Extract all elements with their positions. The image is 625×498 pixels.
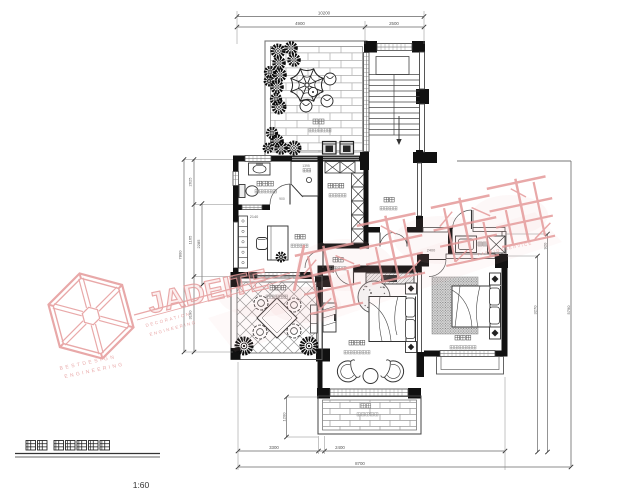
svg-text:2400: 2400 (335, 445, 345, 450)
svg-text:7800: 7800 (178, 250, 183, 260)
svg-text:5790: 5790 (566, 305, 571, 315)
svg-text:1165: 1165 (188, 235, 193, 244)
svg-text:1395: 1395 (302, 164, 310, 168)
svg-text:10200: 10200 (318, 11, 331, 16)
svg-text:1200: 1200 (282, 412, 287, 422)
svg-text:900: 900 (279, 197, 285, 201)
svg-text:2140: 2140 (250, 215, 258, 219)
svg-text:3300: 3300 (269, 445, 279, 450)
svg-text:8700: 8700 (355, 461, 365, 466)
svg-text:4900: 4900 (295, 21, 305, 26)
svg-text:2500: 2500 (389, 21, 399, 26)
svg-text:1:60: 1:60 (133, 480, 150, 490)
svg-text:2625: 2625 (188, 177, 193, 187)
svg-text:2285: 2285 (196, 239, 201, 249)
svg-text:3270: 3270 (533, 305, 538, 315)
